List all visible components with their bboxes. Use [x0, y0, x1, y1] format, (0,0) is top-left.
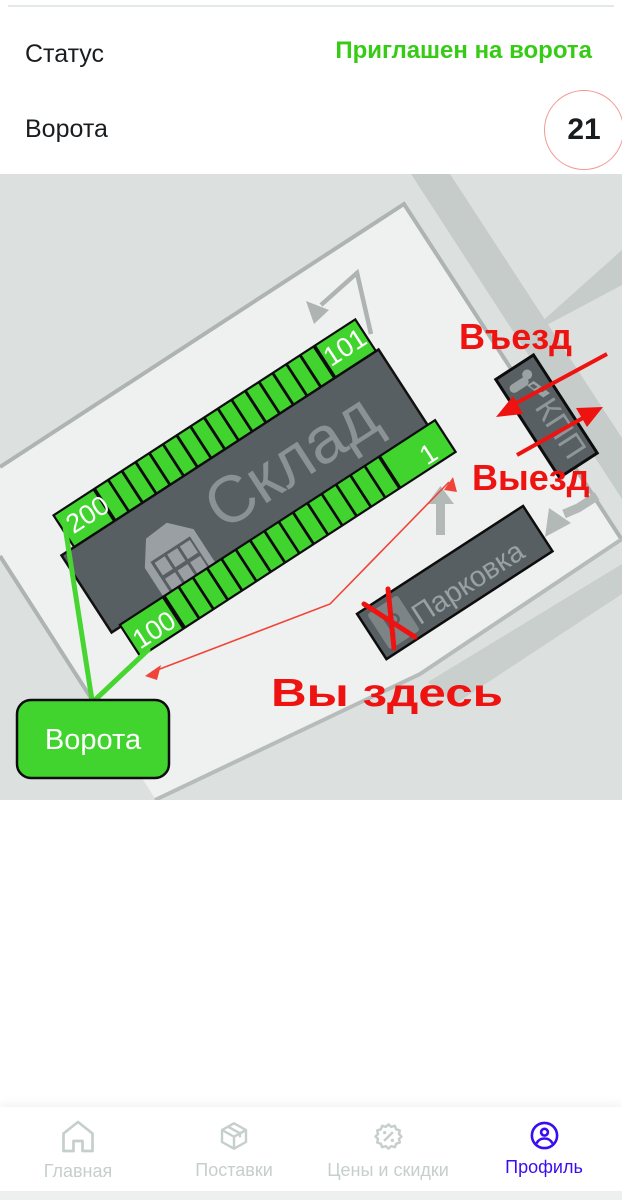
svg-text:Ворота: Ворота [45, 724, 142, 756]
svg-text:Выезд: Выезд [472, 457, 590, 498]
svg-text:Въезд: Въезд [459, 316, 572, 357]
svg-text:Вы здесь: Вы здесь [271, 672, 503, 715]
